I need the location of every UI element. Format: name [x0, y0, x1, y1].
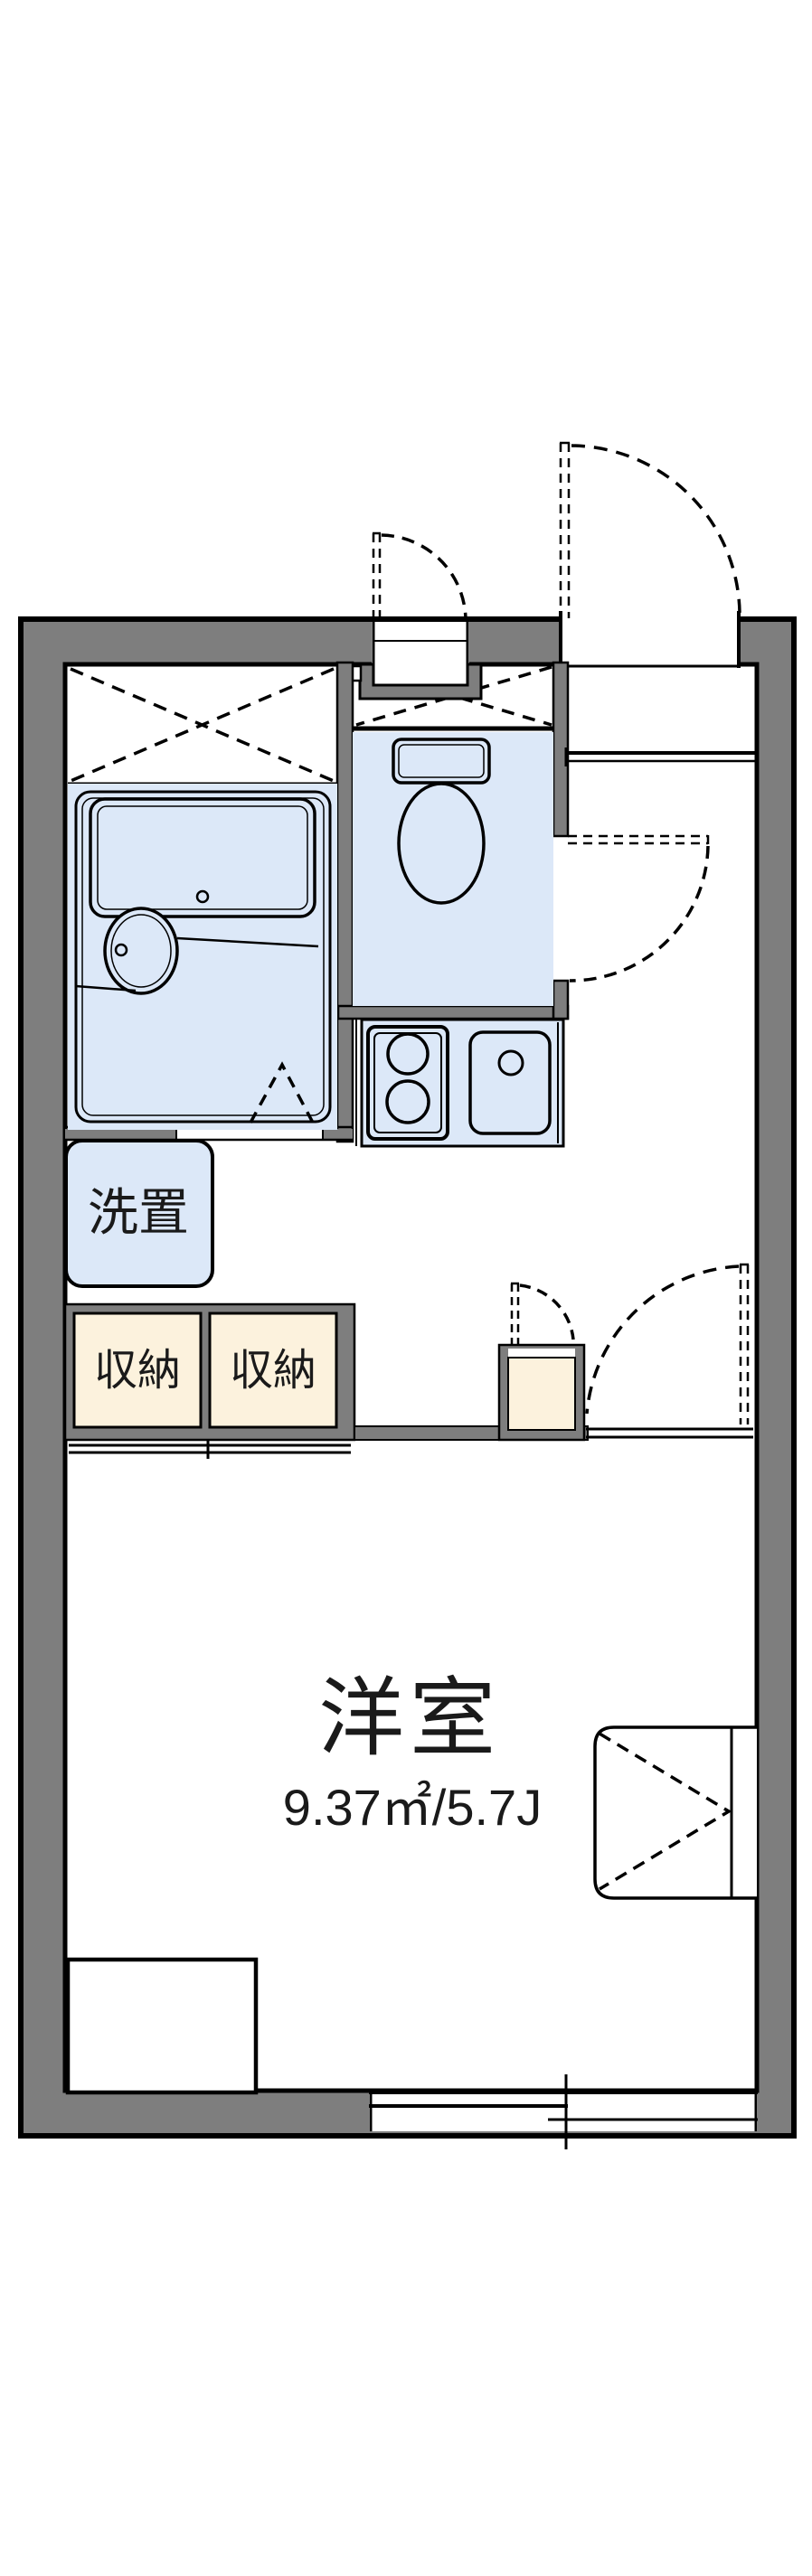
room-name-label: 洋室 — [318, 1677, 501, 1763]
floor-plan-drawing — [0, 0, 812, 2576]
storage-label-1: 収納 — [94, 1349, 181, 1393]
washer-space-label: 洗置 — [88, 1188, 189, 1238]
bathtub-icon — [90, 799, 315, 917]
floor-plan-page: 洋室 9.37㎡/5.7J 洗置 収納 収納 — [0, 0, 812, 2576]
storage-label-2: 収納 — [230, 1349, 316, 1393]
sink-icon — [470, 1032, 550, 1133]
entrance-door-icon — [560, 443, 740, 618]
bathroom — [68, 784, 337, 1130]
pillar-box — [499, 1345, 584, 1440]
kitchen — [356, 1020, 563, 1146]
toilet-room — [353, 732, 553, 1006]
corner-counter — [68, 1960, 256, 2092]
room-area-label: 9.37㎡/5.7J — [283, 1782, 542, 1833]
side-window — [595, 1727, 757, 1898]
entrance-opening — [559, 611, 741, 668]
toilet-icon — [393, 739, 489, 903]
basin-icon — [105, 908, 177, 993]
stove-icon — [368, 1027, 448, 1139]
bay-window-door-icon — [373, 533, 466, 621]
